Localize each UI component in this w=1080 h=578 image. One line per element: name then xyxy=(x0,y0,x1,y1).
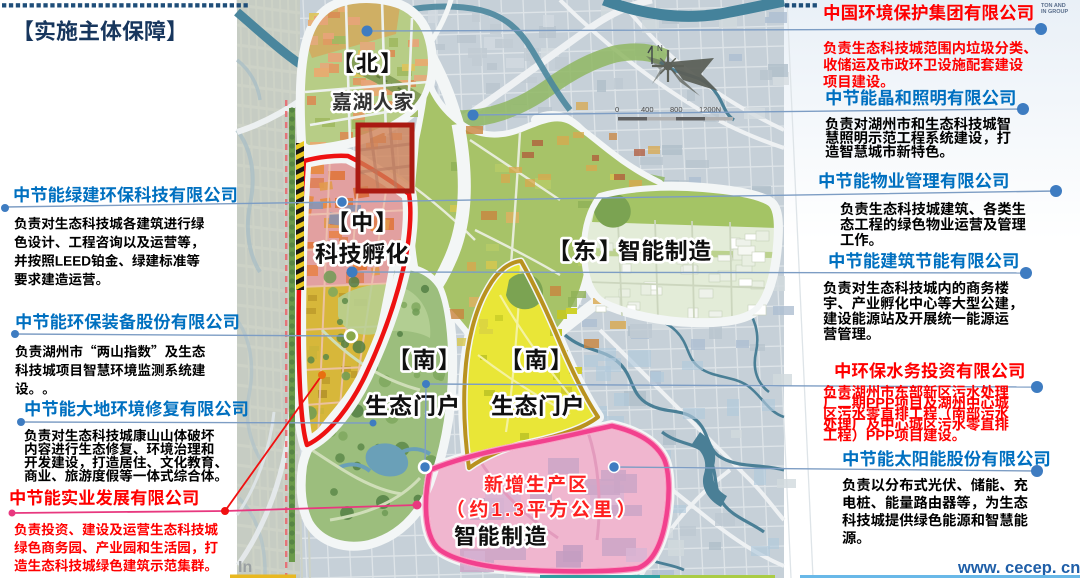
svg-text:IN GROUP: IN GROUP xyxy=(1041,9,1069,15)
svg-text:0: 0 xyxy=(615,105,619,114)
svg-text:In: In xyxy=(238,559,252,576)
svg-text:www. cecep. cn: www. cecep. cn xyxy=(957,559,1080,577)
svg-text:N: N xyxy=(657,44,663,53)
